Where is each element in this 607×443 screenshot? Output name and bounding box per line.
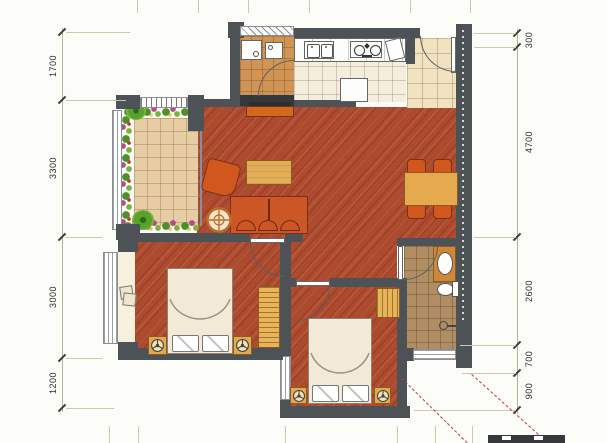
kitchen-north-wall <box>294 28 420 38</box>
nightstand <box>148 336 167 355</box>
dim-label-right-4700: 4700 <box>522 127 536 157</box>
extension-line <box>460 345 516 346</box>
sofa-cushion <box>258 220 278 231</box>
bay-window-band <box>103 252 118 344</box>
extension-stub <box>309 0 310 13</box>
washing-machine <box>241 40 262 60</box>
floorplan-canvas: 1700 3300 3000 1200 300 4700 2600 700 90… <box>0 0 607 443</box>
extension-line <box>66 408 114 409</box>
sink-basin <box>307 44 320 58</box>
balcony-post-topright <box>188 95 204 131</box>
sofa <box>230 196 308 234</box>
blanket-fold <box>309 351 371 375</box>
extension-line <box>414 410 516 411</box>
extension-stub <box>397 426 398 443</box>
extension-line <box>66 358 102 359</box>
sofa-seam <box>268 199 270 221</box>
laundry-west-wall <box>230 26 240 105</box>
side-table <box>206 207 232 233</box>
extension-line <box>66 32 130 33</box>
kitchen-sink <box>304 41 334 59</box>
balcony-post-topleft <box>116 95 140 109</box>
extension-stub <box>472 426 473 443</box>
laundry-window <box>240 26 294 36</box>
pillow <box>202 335 229 352</box>
extension-line <box>474 47 516 48</box>
dining-chair <box>433 204 452 219</box>
laundry-appliance <box>265 42 283 59</box>
extension-stub <box>435 426 436 443</box>
master-door-leaf <box>296 281 330 286</box>
fragment-notch <box>502 436 511 440</box>
master-north-wall-stub <box>283 278 296 287</box>
toilet-tank <box>452 281 459 297</box>
master-wardrobe <box>376 288 400 318</box>
east-wall-dotted-line <box>462 30 464 320</box>
stove <box>350 41 382 58</box>
extension-line <box>474 237 516 238</box>
master-bed <box>308 318 372 404</box>
stove-knobs <box>362 55 372 57</box>
sink-basin <box>321 44 333 58</box>
blanket-fold <box>168 297 232 321</box>
bathroom-north-wall <box>404 238 458 246</box>
extension-stub <box>109 426 110 443</box>
bathroom-east-wall <box>456 238 472 368</box>
nightstand <box>374 387 391 404</box>
bathroom-door-leaf <box>398 246 403 280</box>
balcony-window-left <box>112 110 122 230</box>
dim-label-left-3000: 3000 <box>46 282 60 312</box>
entry-east-wall <box>456 24 472 110</box>
right-dimension-line <box>517 29 518 414</box>
lamp-icon <box>292 389 306 403</box>
lamp-icon <box>150 338 165 353</box>
dining-chair <box>407 204 426 219</box>
dim-label-left-3300: 3300 <box>46 153 60 183</box>
pillow <box>312 385 339 402</box>
master-north-wall <box>330 278 407 287</box>
partial-drawing-fragment <box>488 435 565 443</box>
pillow <box>342 385 369 402</box>
extension-line <box>462 373 516 374</box>
dining-east-wall <box>456 110 472 238</box>
bathroom-south-wall <box>397 348 414 361</box>
extension-stub <box>198 0 199 13</box>
sofa-cushion <box>236 220 256 231</box>
bedroom-wardrobe <box>258 286 280 348</box>
extension-stub <box>137 0 138 13</box>
balcony-railing-top <box>140 97 188 108</box>
shower-arm <box>447 325 456 327</box>
dim-label-left-1700: 1700 <box>46 51 60 81</box>
dim-label-left-1200: 1200 <box>46 368 60 398</box>
lamp-icon <box>376 389 390 403</box>
lamp-icon <box>235 338 250 353</box>
kitchen-entry-wall <box>406 28 415 64</box>
extension-stub <box>248 0 249 13</box>
dim-label-right-900: 900 <box>522 376 536 406</box>
extension-line <box>66 237 102 238</box>
fragment-notch <box>534 436 543 440</box>
fridge <box>340 78 368 102</box>
faucet-dot <box>325 46 327 48</box>
dining-table <box>404 172 458 206</box>
dim-label-right-300: 300 <box>522 25 536 55</box>
bathroom-west-wall-top <box>397 238 407 246</box>
washer-dial <box>253 51 259 57</box>
master-south-wall <box>280 406 410 418</box>
extension-line <box>474 33 516 34</box>
sofa-cushion <box>280 220 300 231</box>
balcony-sliding-door <box>200 130 202 226</box>
extension-stub <box>410 0 411 13</box>
pillow <box>172 335 199 352</box>
bay-post-top <box>118 238 138 252</box>
tv-stand <box>246 106 294 117</box>
cushion-item <box>122 292 136 306</box>
dim-label-right-2600: 2600 <box>522 276 536 306</box>
vanity-sink <box>437 252 453 275</box>
bedroom-north-wall <box>135 233 250 242</box>
bathroom-window <box>413 349 456 360</box>
bedroom-north-wall-stub <box>285 233 303 242</box>
nightstand <box>233 336 252 355</box>
faucet-dot <box>311 46 313 48</box>
extension-stub <box>470 0 471 13</box>
bay-window-decor <box>120 286 134 306</box>
bedroom-bed <box>167 268 233 354</box>
appliance-dial <box>268 45 273 50</box>
extension-line <box>66 100 126 101</box>
extension-stub <box>285 426 286 443</box>
dim-label-right-700: 700 <box>522 344 536 374</box>
nightstand <box>290 387 307 404</box>
extension-stub <box>138 426 139 443</box>
coffee-table <box>246 160 292 185</box>
